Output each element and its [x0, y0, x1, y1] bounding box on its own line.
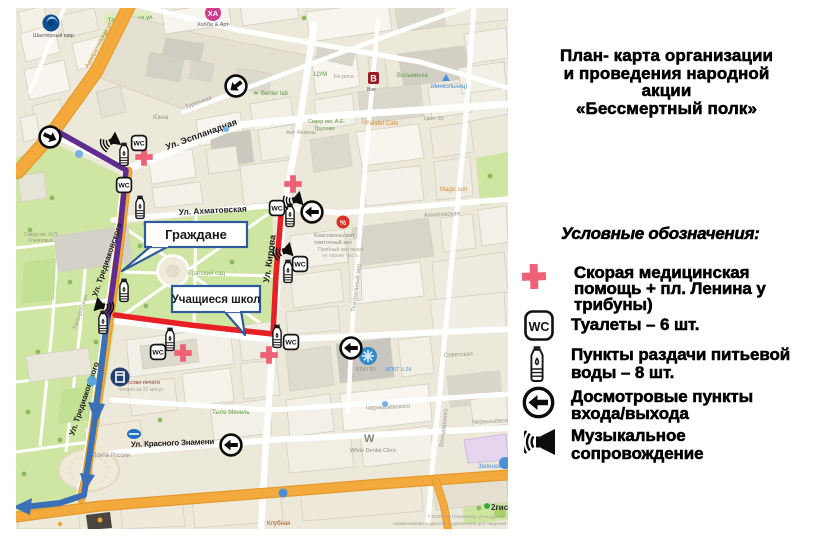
svg-text:ВПST U.24: ВПST U.24 — [386, 367, 411, 373]
svg-text:плиточный зал: плиточный зал — [314, 239, 352, 246]
svg-text:2гис: 2гис — [491, 503, 508, 512]
svg-text:Тыле Мянель: Тыле Мянель — [212, 410, 250, 416]
svg-text:Братский сад: Братский сад — [188, 270, 225, 277]
svg-text:Комсомольский: Комсомольский — [314, 232, 354, 239]
svg-text:Сквер им. А.Е.: Сквер им. А.Е. — [308, 119, 346, 125]
svg-text:Минкольниц): Минкольниц) — [431, 84, 467, 90]
svg-text:W: W — [364, 433, 375, 445]
svg-text:Ант Яхмень: Ант Яхмень — [286, 130, 316, 136]
svg-text:Хобби & Арт: Хобби & Арт — [197, 22, 229, 28]
svg-text:Fe price: Fe price — [334, 74, 354, 80]
svg-text:© 2025 Том Планшетер, ул-ы кдр: © 2025 Том Планшетер, ул-ы кдрт, АЗ — [427, 513, 506, 519]
svg-text:Почта России: Почта России — [92, 453, 130, 459]
svg-text:БТИ ГБУ: БТИ ГБУ — [356, 367, 377, 373]
svg-text:Трусова: Трусова — [314, 126, 335, 132]
svg-text:White Dental Clinic: White Dental Clinic — [350, 448, 397, 454]
svg-text:Falafel Cafe: Falafel Cafe — [366, 121, 399, 127]
svg-text:Прибный зал через: Прибный зал через — [318, 246, 364, 253]
svg-text:Ульяновых: Ульяновых — [28, 238, 54, 244]
svg-text:Граждане: Граждане — [165, 227, 227, 242]
svg-text:Учащиеся школ: Учащиеся школ — [172, 294, 261, 306]
svg-text:Читало за 20 минут: Читало за 20 минут — [118, 387, 164, 393]
svg-text:ЦУМ: ЦУМ — [314, 72, 327, 78]
svg-text:Magic sun: Magic sun — [440, 187, 467, 193]
svg-text:Цвет 91: Цвет 91 — [424, 116, 444, 122]
svg-text:Клубная: Клубная — [267, 521, 290, 527]
svg-text:Вольминка: Вольминка — [397, 73, 428, 79]
svg-text:не парнет часть: не парнет часть — [322, 253, 359, 259]
svg-text:наименования создателя, подклю: наименования создателя, подключения для … — [393, 520, 506, 526]
svg-text:Юкна: Юкна — [153, 115, 169, 121]
svg-text:Bier: Bier — [367, 87, 376, 93]
svg-text:Шахтёрный мир: Шахтёрный мир — [33, 32, 74, 39]
svg-text:ХА: ХА — [208, 9, 219, 18]
svg-text:Berlier lab: Berlier lab — [261, 91, 289, 97]
svg-text:B: B — [370, 74, 377, 84]
svg-text:%: % — [340, 220, 347, 227]
svg-text:WC: WC — [529, 320, 550, 334]
